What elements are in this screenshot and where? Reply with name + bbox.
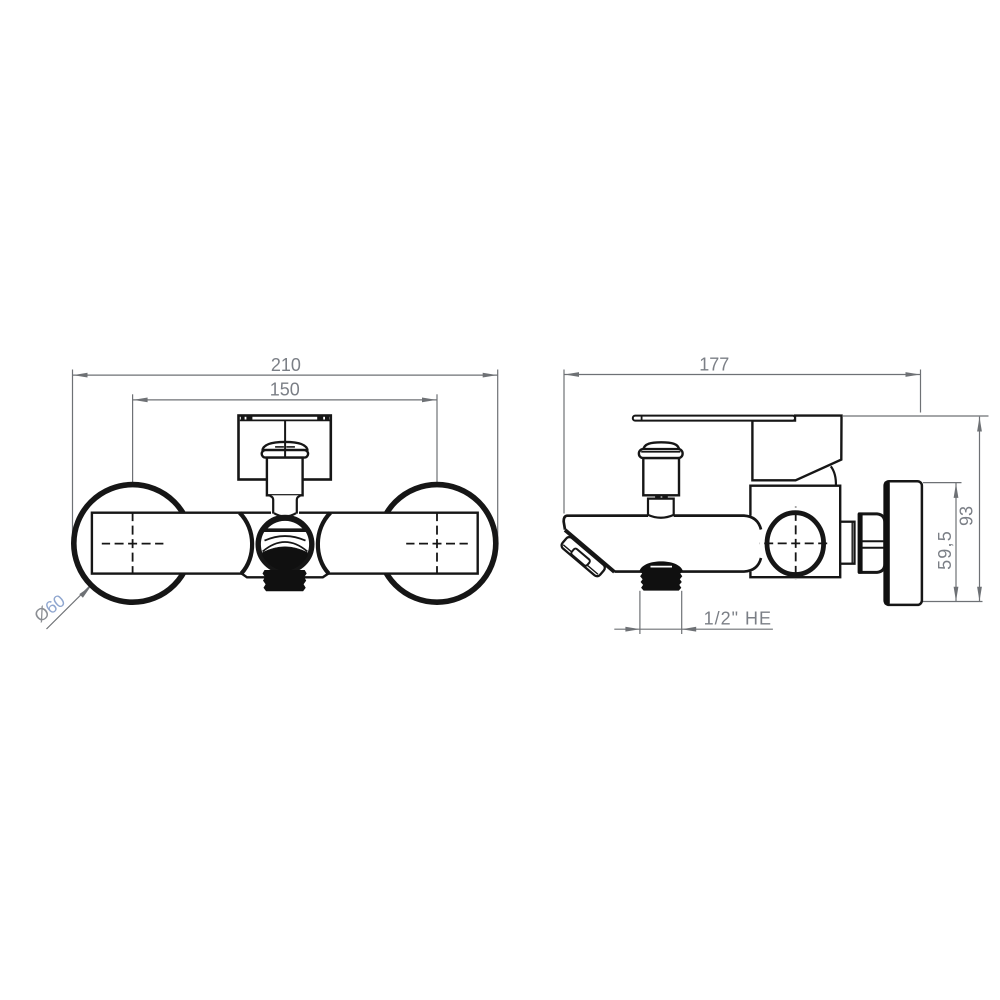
svg-text:93: 93 (957, 506, 977, 526)
svg-text:1/2" HE: 1/2" HE (704, 609, 772, 629)
svg-text:150: 150 (270, 380, 300, 400)
svg-text:177: 177 (699, 355, 729, 375)
svg-text:210: 210 (271, 355, 301, 375)
svg-text:59,5: 59,5 (935, 530, 955, 570)
